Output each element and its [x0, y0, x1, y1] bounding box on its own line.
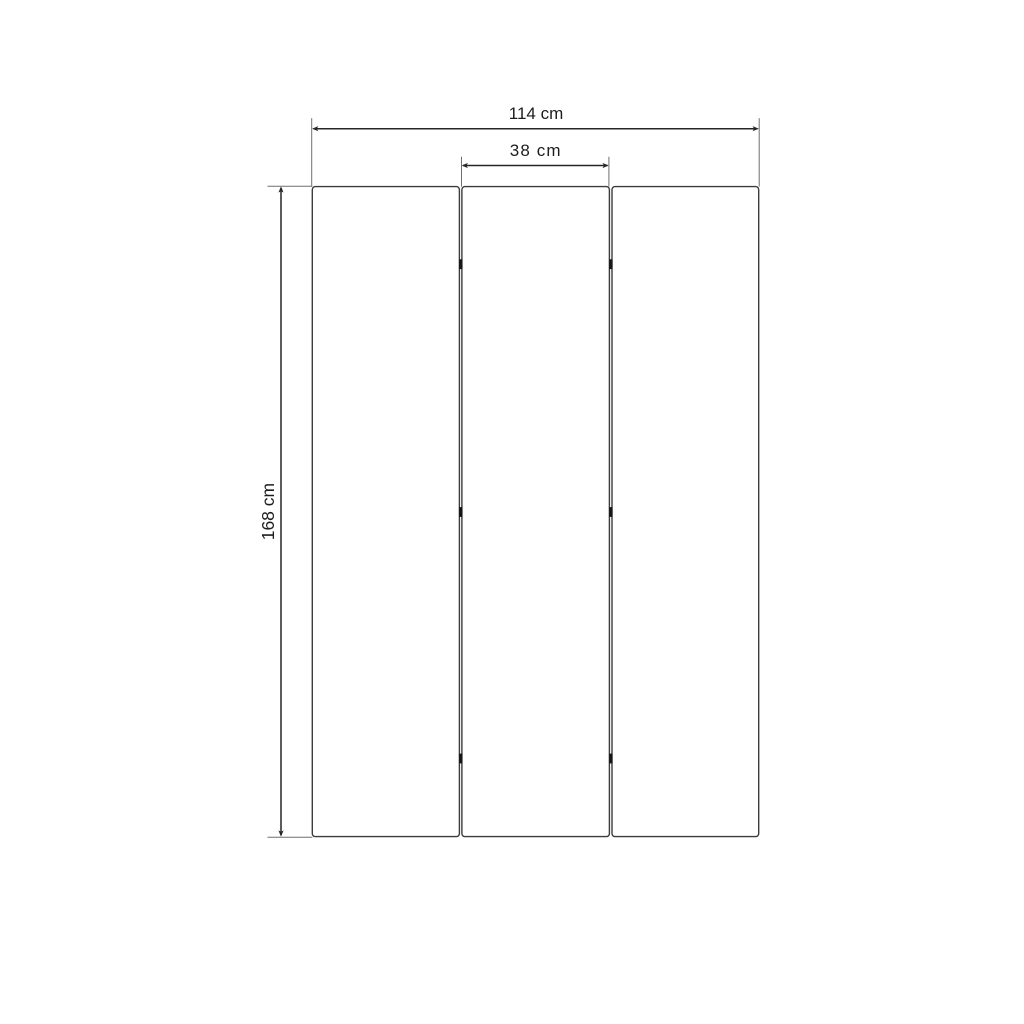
svg-text:38 cm: 38 cm	[510, 141, 562, 160]
svg-text:168 cm: 168 cm	[258, 483, 278, 540]
svg-text:114 cm: 114 cm	[509, 104, 564, 123]
